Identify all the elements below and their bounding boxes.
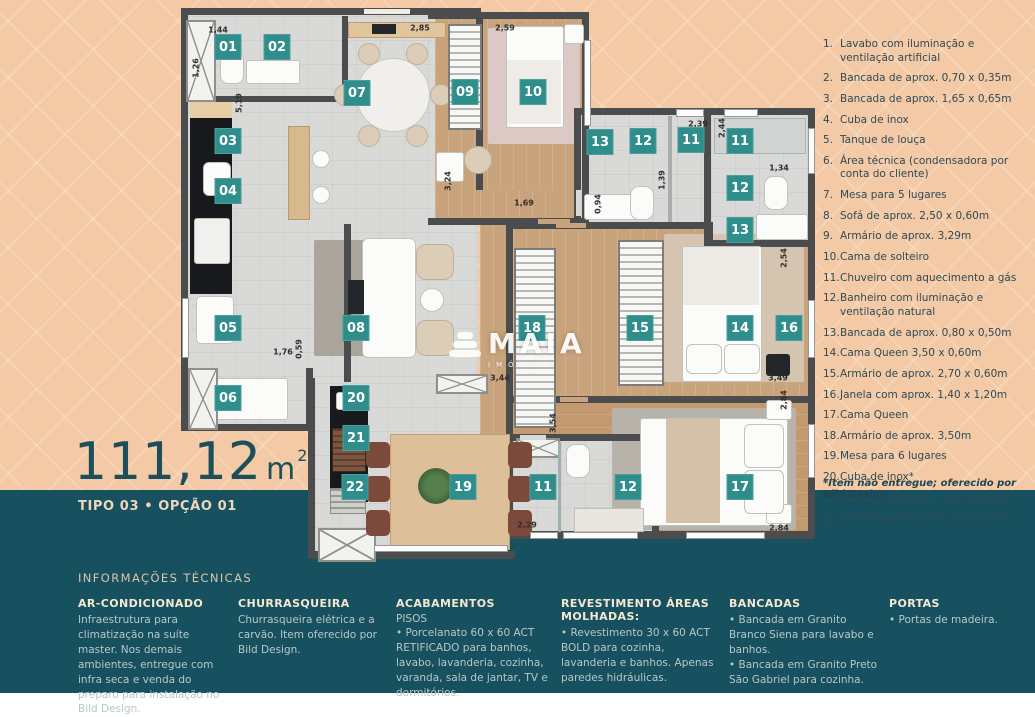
legend-item-number: 19. xyxy=(823,450,840,464)
room-badge: 09 xyxy=(452,79,479,105)
suite-bed-blanket xyxy=(666,419,720,523)
shaft-box xyxy=(436,374,488,394)
window xyxy=(584,40,591,126)
tech-column-body: • Bancada em Granito Branco Siena para l… xyxy=(729,613,881,688)
dining-chair xyxy=(406,125,428,147)
tech-column-body: Churrasqueira elétrica e a carvão. Item … xyxy=(238,613,388,658)
dining-chair xyxy=(358,43,380,65)
suite-bath-vanity xyxy=(574,508,644,532)
legend-item-text: Banheiro com iluminação e ventilação nat… xyxy=(840,292,1023,319)
legend-item-number: 5. xyxy=(823,134,840,148)
legend-list: 1.Lavabo com iluminação e ventilação art… xyxy=(823,38,1023,533)
door-opening xyxy=(364,9,410,14)
legend-item-number: 16. xyxy=(823,389,840,403)
area-superscript: 2 xyxy=(297,446,307,465)
legend-item-number: 10. xyxy=(823,251,840,265)
tech-column-body: Infraestrutura para climatização na suít… xyxy=(78,613,230,717)
room-badge: 17 xyxy=(727,474,754,500)
tech-column-title: ACABAMENTOS xyxy=(396,597,553,610)
legend-item: 6.Área técnica (condensadora por conta d… xyxy=(823,155,1023,182)
legend-item-text: Cama de solteiro xyxy=(840,251,929,265)
dimension-label: 2,59 xyxy=(495,24,515,33)
room-badge: 12 xyxy=(727,175,754,201)
tech-column-title: BANCADAS xyxy=(729,597,881,610)
legend-item-number: 7. xyxy=(823,189,840,203)
balcony-rail xyxy=(374,545,508,552)
room-badge: 06 xyxy=(215,385,242,411)
door-opening xyxy=(560,397,588,402)
door-opening xyxy=(556,223,586,228)
legend-item: 11.Chuveiro com aquecimento a gás xyxy=(823,272,1023,286)
legend-item-text: Cuba de inox xyxy=(840,114,909,128)
room-badge: 08 xyxy=(343,315,370,341)
desk-chair xyxy=(464,146,492,174)
room-badge: 01 xyxy=(215,34,242,60)
legend-item: 1.Lavabo com iluminação e ventilação art… xyxy=(823,38,1023,65)
legend-item-text: Mesa para 5 lugares xyxy=(840,189,947,203)
legend-item-text: Cama Queen 3,50 x 0,60m xyxy=(840,347,981,361)
dimension-label: 0,59 xyxy=(295,339,304,359)
tech-columns: AR-CONDICIONADOInfraestrutura para clima… xyxy=(78,597,1013,717)
dimension-label: 2,84 xyxy=(769,524,789,533)
type-option-label: TIPO 03 • OPÇÃO 01 xyxy=(78,499,237,514)
legend-item: 4.Cuba de inox xyxy=(823,114,1023,128)
bath1-toilet xyxy=(630,186,654,220)
legend-item-number: 22. xyxy=(823,512,840,526)
area-title: 111,12m2 xyxy=(74,436,307,488)
legend-item: 10.Cama de solteiro xyxy=(823,251,1023,265)
dimension-label: 1,26 xyxy=(192,58,201,78)
bedroom2-wardrobe xyxy=(618,240,664,386)
dimension-label: 3,24 xyxy=(444,171,453,191)
room-badge: 16 xyxy=(776,315,803,341)
wall xyxy=(506,222,712,229)
tech-column: PORTAS• Portas de madeira. xyxy=(889,597,999,717)
legend-item: 2.Bancada de aprox. 0,70 x 0,35m xyxy=(823,72,1023,86)
bar-counter xyxy=(288,126,310,220)
legend-item-text: Mesa para 6 lugares xyxy=(840,450,947,464)
bath1-shower-glass xyxy=(668,116,672,222)
legend-item-text: Cama Queen xyxy=(840,409,908,423)
window xyxy=(676,109,704,117)
legend-item: 8.Sofá de aprox. 2,50 x 0,60m xyxy=(823,210,1023,224)
door-opening xyxy=(576,190,581,216)
window xyxy=(686,532,765,539)
wall xyxy=(308,378,315,559)
chair xyxy=(508,442,532,468)
legend-item-text: Tanque de louça xyxy=(840,134,926,148)
tech-column-title: AR-CONDICIONADO xyxy=(78,597,230,610)
dimension-label: 1,39 xyxy=(658,170,667,190)
tech-heading: INFORMAÇÕES TÉCNICAS xyxy=(78,571,252,585)
tv-panel xyxy=(348,280,364,314)
legend-item-number: 2. xyxy=(823,72,840,86)
legend-item: 13.Bancada de aprox. 0,80 x 0,50m xyxy=(823,327,1023,341)
tv xyxy=(372,24,396,34)
room-badge: 04 xyxy=(215,178,242,204)
legend-item-text: Armário de aprox. 2,70 x 0,60m xyxy=(840,368,1008,382)
wall xyxy=(428,12,589,19)
shaft-box xyxy=(188,368,218,430)
legend-item-number: 17. xyxy=(823,409,840,423)
legend-item: 3.Bancada de aprox. 1,65 x 0,65m xyxy=(823,93,1023,107)
legend-item: 15.Armário de aprox. 2,70 x 0,60m xyxy=(823,368,1023,382)
dimension-label: 3,49 xyxy=(768,374,788,383)
room-badge: 13 xyxy=(727,217,754,243)
tech-column: ACABAMENTOSPISOS• Porcelanato 60 x 60 AC… xyxy=(396,597,553,717)
tv-sideboard xyxy=(348,22,446,38)
legend-item-number: 14. xyxy=(823,347,840,361)
room-badge: 03 xyxy=(215,128,242,154)
room-badge: 13 xyxy=(587,129,614,155)
armchair xyxy=(416,244,454,280)
shower-glass xyxy=(558,442,561,532)
area-value: 111,12 xyxy=(74,432,262,492)
legend-item: 22.Churrasqueira elétrica ou carvão* xyxy=(823,512,1023,526)
door-opening xyxy=(520,435,546,440)
suite-bath-toilet xyxy=(566,444,590,478)
dimension-label: 2,85 xyxy=(410,24,430,33)
dining-chair xyxy=(406,43,428,65)
legend-item: 12.Banheiro com iluminação e ventilação … xyxy=(823,292,1023,319)
dimension-label: 1,34 xyxy=(769,164,789,173)
room-badge: 10 xyxy=(520,79,547,105)
legend-item-number: 4. xyxy=(823,114,840,128)
legend-item: 9.Armário de aprox. 3,29m xyxy=(823,230,1023,244)
floorplan-poster: 0102030405060708091013121111121318151416… xyxy=(0,0,1035,693)
tech-column: BANCADAS• Bancada em Granito Branco Sien… xyxy=(729,597,881,717)
pillow xyxy=(744,424,784,468)
dining-chair xyxy=(358,125,380,147)
bath2-vanity xyxy=(756,214,808,240)
tech-column-body: • Revestimento 30 x 60 ACT BOLD para coz… xyxy=(561,626,721,686)
pillow xyxy=(724,344,760,374)
dimension-label: 3,54 xyxy=(549,413,558,433)
window xyxy=(808,424,815,478)
dimension-label: 2,84 xyxy=(780,390,789,410)
maia-logo-icon xyxy=(448,330,482,364)
chair xyxy=(366,476,390,502)
legend-item-text: Lavabo com iluminação e ventilação artif… xyxy=(840,38,1023,65)
pillow xyxy=(686,344,722,374)
legend-item: 7.Mesa para 5 lugares xyxy=(823,189,1023,203)
legend-item-number: 13. xyxy=(823,327,840,341)
legend-item-number: 1. xyxy=(823,38,840,65)
room-badge: 11 xyxy=(727,128,754,154)
legend-item-number: 3. xyxy=(823,93,840,107)
room-badge: 19 xyxy=(450,474,477,500)
cooktop xyxy=(194,218,230,264)
tech-column-body: • Porcelanato 60 x 60 ACT RETIFICADO par… xyxy=(396,626,553,701)
coffee-table xyxy=(420,288,444,312)
legend-item-text: Chuveiro com aquecimento a gás xyxy=(840,272,1016,286)
legend-item-text: Sofá de aprox. 2,50 x 0,60m xyxy=(840,210,989,224)
chair xyxy=(366,510,390,536)
legend-item-number: 18. xyxy=(823,430,840,444)
tech-column-body: • Portas de madeira. xyxy=(889,613,999,628)
watermark-text: MAIA IMÓVEIS xyxy=(488,330,586,369)
tech-column-title: REVESTIMENTO ÁREAS MOLHADAS: xyxy=(561,597,721,623)
legend-item-number: 12. xyxy=(823,292,840,319)
area-unit: m xyxy=(266,452,295,487)
office-closet xyxy=(448,24,482,130)
dimension-label: 2,44 xyxy=(718,118,727,138)
chair xyxy=(508,476,532,502)
legend-item: 14.Cama Queen 3,50 x 0,60m xyxy=(823,347,1023,361)
legend-item-number: 6. xyxy=(823,155,840,182)
legend-item-text: Bancada de aprox. 0,80 x 0,50m xyxy=(840,327,1011,341)
dimension-label: 2,54 xyxy=(780,248,789,268)
legend-item: 19.Mesa para 6 lugares xyxy=(823,450,1023,464)
legend-item-text: Bancada de aprox. 1,65 x 0,65m xyxy=(840,93,1011,107)
tech-column: AR-CONDICIONADOInfraestrutura para clima… xyxy=(78,597,230,717)
legend-footnote: *Item não entregue; oferecido por Bild D… xyxy=(823,478,1028,500)
bath2-toilet xyxy=(764,176,788,210)
legend-item-number: 15. xyxy=(823,368,840,382)
legend-item-number: 11. xyxy=(823,272,840,286)
tech-column: CHURRASQUEIRAChurrasqueira elétrica e a … xyxy=(238,597,388,717)
dimension-label: 5,19 xyxy=(235,93,244,113)
legend-item-text: Armário de aprox. 3,50m xyxy=(840,430,971,444)
window xyxy=(808,300,815,358)
brand-name: MAIA xyxy=(488,330,586,358)
room-badge: 11 xyxy=(530,474,557,500)
room-badge: 02 xyxy=(264,34,291,60)
lavabo-vanity xyxy=(246,60,300,84)
watermark: MAIA IMÓVEIS xyxy=(448,330,586,369)
room-badge: 21 xyxy=(343,425,370,451)
dimension-label: 1,76 xyxy=(273,348,293,357)
bar-stool xyxy=(312,150,330,168)
wall xyxy=(706,222,713,247)
room-badge: 05 xyxy=(215,315,242,341)
window xyxy=(530,532,558,539)
brand-subtitle: IMÓVEIS xyxy=(488,361,586,369)
window xyxy=(724,109,758,117)
room-badge: 12 xyxy=(615,474,642,500)
dimension-label: 0,94 xyxy=(594,194,603,214)
tech-column-title: CHURRASQUEIRA xyxy=(238,597,388,610)
room-badge: 12 xyxy=(630,128,657,154)
tech-column-title: PORTAS xyxy=(889,597,999,610)
legend-item-text: Churrasqueira elétrica ou carvão* xyxy=(840,512,1018,526)
window xyxy=(563,532,638,539)
bar-stool xyxy=(312,186,330,204)
legend-item-text: Bancada de aprox. 0,70 x 0,35m xyxy=(840,72,1011,86)
room-badge: 20 xyxy=(343,385,370,411)
dimension-label: 3,44 xyxy=(490,374,510,383)
legend-item: 16.Janela com aprox. 1,40 x 1,20m xyxy=(823,389,1023,403)
tech-column: REVESTIMENTO ÁREAS MOLHADAS:• Revestimen… xyxy=(561,597,721,717)
room-badge: 22 xyxy=(342,474,369,500)
room-badge: 14 xyxy=(727,315,754,341)
legend-item-text: Área técnica (condensadora por conta do … xyxy=(840,155,1023,182)
legend-item-text: Janela com aprox. 1,40 x 1,20m xyxy=(840,389,1007,403)
chair xyxy=(366,442,390,468)
legend-item: 18.Armário de aprox. 3,50m xyxy=(823,430,1023,444)
tech-column-subtitle: PISOS xyxy=(396,613,553,625)
legend-item: 5.Tanque de louça xyxy=(823,134,1023,148)
nightstand xyxy=(564,24,584,44)
dimension-label: 1,69 xyxy=(514,199,534,208)
sofa xyxy=(362,238,416,358)
room-badge: 15 xyxy=(627,315,654,341)
dimension-label: 2,29 xyxy=(517,521,537,530)
window xyxy=(182,298,189,358)
room-badge: 11 xyxy=(678,127,705,153)
room-badge: 07 xyxy=(344,80,371,106)
legend-item-text: Armário de aprox. 3,29m xyxy=(840,230,971,244)
legend-item: 17.Cama Queen xyxy=(823,409,1023,423)
window xyxy=(808,128,815,174)
legend-item-number: 9. xyxy=(823,230,840,244)
legend-item-number: 8. xyxy=(823,210,840,224)
queen-bed-blanket xyxy=(683,247,759,305)
